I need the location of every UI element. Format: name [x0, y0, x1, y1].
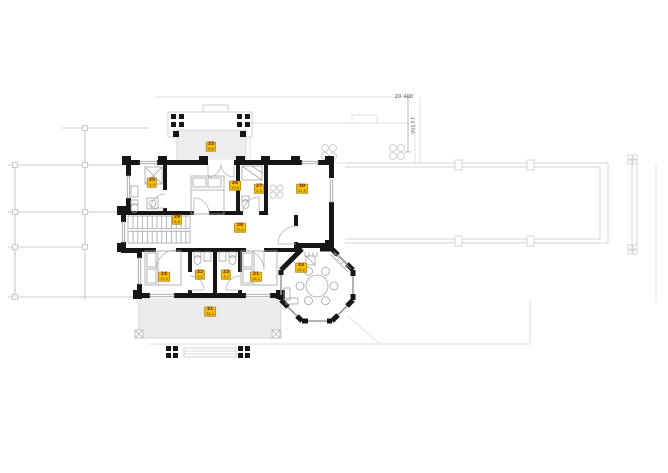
room-label-balcony: 358,6 — [206, 142, 216, 152]
room-area: 16,1 — [252, 278, 260, 282]
room-label-bathroom-1: 223,2 — [195, 270, 205, 280]
room-label-bedroom-top: 2615,6 — [229, 181, 241, 191]
floor-plan-canvas: 20 400 13 500 358,6254,92615,6274,33021,… — [0, 0, 668, 473]
room-area: 19,2 — [297, 269, 305, 273]
octagon-windows — [281, 255, 353, 321]
room-area: 3,2 — [223, 276, 229, 280]
dimension-width-label: 20 400 — [383, 94, 425, 100]
room-label-bedroom-left: 2415,9 — [158, 272, 170, 282]
room-area: 21,9 — [298, 190, 306, 194]
room-label-bathroom-2: 233,2 — [221, 270, 231, 280]
entry-steps — [166, 346, 250, 358]
chimney-flues-icon — [270, 145, 404, 198]
room-area: 6,8 — [174, 221, 180, 225]
room-label-room-right: 3021,9 — [296, 184, 308, 194]
room-label-hall: 2815,2 — [234, 223, 246, 233]
room-label-stairs: 296,8 — [172, 215, 182, 225]
room-area: 15,2 — [236, 229, 244, 233]
room-area: 4,3 — [256, 190, 262, 194]
room-label-lounge-octagon: 3319,2 — [295, 263, 307, 273]
right-pergola — [345, 155, 656, 302]
room-area: 3,2 — [197, 276, 203, 280]
floor-plan-drawing — [0, 0, 668, 473]
room-area: 15,9 — [160, 278, 168, 282]
room-label-bathroom-top: 254,9 — [147, 178, 157, 188]
room-area: 8,6 — [208, 148, 214, 152]
room-label-bedroom-right: 2116,1 — [250, 272, 262, 282]
room-area: 38,4 — [206, 313, 214, 317]
room-area: 15,6 — [231, 187, 239, 191]
dimension-height-label: 13 500 — [409, 100, 414, 150]
terrace-area — [135, 298, 281, 338]
room-label-terrace: 3138,4 — [204, 307, 216, 317]
room-label-bathroom-small: 274,3 — [254, 184, 264, 194]
room-area: 4,9 — [149, 184, 155, 188]
balcony — [168, 105, 252, 162]
